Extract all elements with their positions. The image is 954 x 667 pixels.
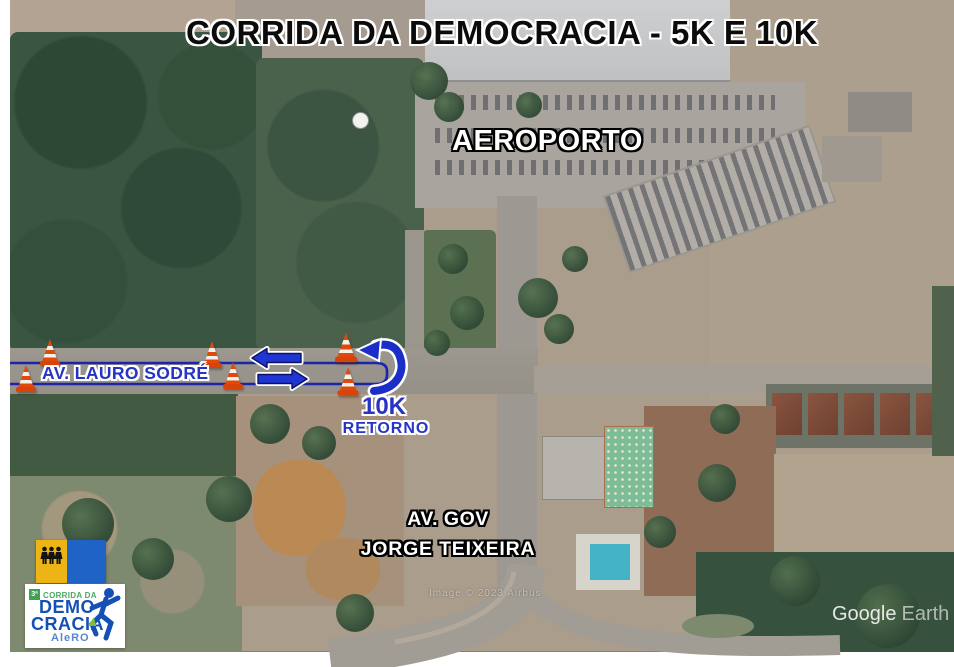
avenue-lauro-sodre-label: AV. LAURO SODRÉ xyxy=(42,363,208,384)
terrain-field-right xyxy=(774,454,954,562)
alero-flag xyxy=(36,540,106,583)
parked-cars-row xyxy=(435,95,775,110)
pool-building xyxy=(542,436,608,500)
tree xyxy=(698,464,736,502)
tree xyxy=(450,296,484,330)
terrain-forest-left xyxy=(10,32,262,352)
tree xyxy=(336,594,374,632)
google-wordmark: Google xyxy=(832,603,897,625)
tree xyxy=(770,556,820,606)
traffic-cone-icon xyxy=(335,333,357,364)
road-branch xyxy=(405,230,424,358)
turnaround-distance-label: 10K xyxy=(352,393,416,421)
tree xyxy=(544,314,574,344)
imagery-credit: Image © 2023 Airbus xyxy=(429,588,542,599)
flag-yellow-field xyxy=(36,540,67,583)
house-roof xyxy=(880,393,910,435)
tree xyxy=(424,330,450,356)
corrida-da-democracia-logo: 3ª CORRIDA DA DEMO CRACIA AleRO xyxy=(25,584,125,648)
terrain-forest-right-edge xyxy=(932,286,954,456)
poster-title: CORRIDA DA DEMOCRACIA - 5K E 10K xyxy=(186,14,810,52)
avenue-gov-label-line2: JORGE TEIXEIRA xyxy=(361,538,536,561)
race-map-poster: CORRIDA DA DEMOCRACIA - 5K E 10K AEROPOR… xyxy=(0,0,954,667)
tree xyxy=(438,244,468,274)
flag-emblem-people-icon xyxy=(39,546,65,566)
tree xyxy=(132,538,174,580)
pool-water xyxy=(590,544,630,580)
turnaround-label: RETORNO xyxy=(334,420,438,438)
tree xyxy=(434,92,464,122)
tree xyxy=(710,404,740,434)
tree xyxy=(644,516,676,548)
house-roof xyxy=(808,393,838,435)
airport-label: AEROPORTO xyxy=(452,125,643,158)
logo-org-name: AleRO xyxy=(51,632,90,644)
terrain-forest-mid xyxy=(256,58,424,350)
avenue-gov-label-line1: AV. GOV xyxy=(407,508,489,531)
recreation-area xyxy=(604,426,654,508)
building-right-2 xyxy=(822,136,882,182)
water-tank xyxy=(352,112,369,129)
tree xyxy=(562,246,588,272)
tree xyxy=(250,404,290,444)
google-earth-watermark: GoogleEarth xyxy=(832,603,949,626)
traffic-cone-icon xyxy=(16,365,36,393)
building-right-1 xyxy=(848,92,912,132)
tree xyxy=(206,476,252,522)
earth-wordmark: Earth xyxy=(902,603,950,625)
house-roof xyxy=(844,393,874,435)
tree xyxy=(518,278,558,318)
terrain-forest-below-road xyxy=(10,392,238,480)
tree xyxy=(516,92,542,118)
flag-blue-field xyxy=(67,540,106,583)
tree xyxy=(302,426,336,460)
traffic-cone-icon xyxy=(223,362,243,390)
house-roof xyxy=(772,393,802,435)
